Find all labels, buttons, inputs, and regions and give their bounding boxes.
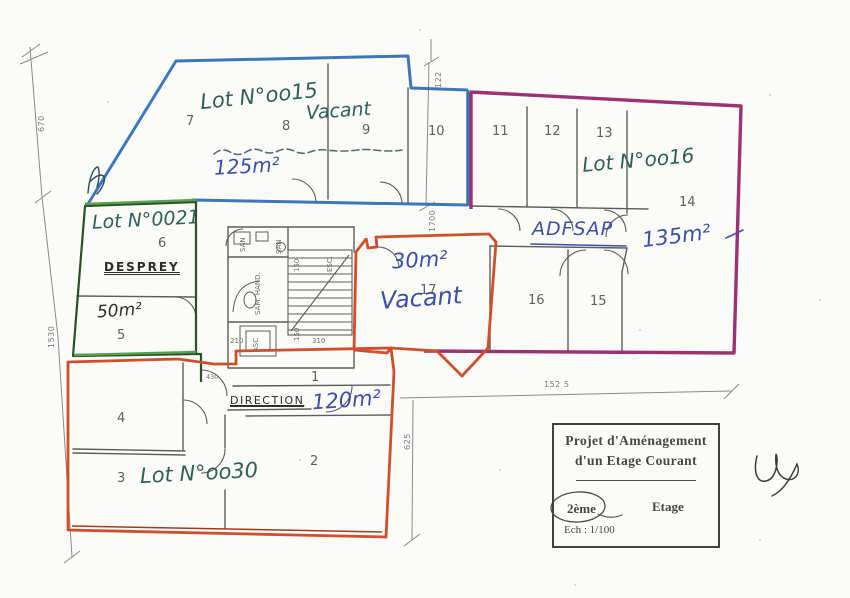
dim-bottom-width: 152 5 — [544, 381, 569, 389]
room-number-1: 1 — [311, 371, 319, 384]
adfsap-underline — [531, 244, 626, 246]
dim-left-lower: 1530 — [48, 326, 56, 348]
title-line-1: Projet d'Aménagement — [554, 433, 718, 449]
room-number-13: 13 — [596, 127, 613, 140]
floor-word: Etage — [652, 499, 684, 515]
dim-310: 310 — [312, 338, 325, 345]
room-number-3: 3 — [117, 472, 125, 485]
dim-150-a: 150 — [294, 259, 301, 272]
room-number-2: 2 — [310, 455, 318, 468]
area-135-arrow — [726, 230, 743, 238]
lot21-tenant: DESPREY — [104, 261, 180, 275]
title-line-2: d'un Etage Courant — [554, 453, 718, 469]
room-number-15: 15 — [590, 295, 607, 308]
core-label-sam-hand: SAM. HAND. — [255, 272, 262, 315]
floor-value: 2ème — [567, 501, 596, 517]
dim-bottom-height: 625 — [404, 433, 412, 450]
room-number-6: 6 — [158, 237, 166, 250]
dim-210: 210 — [230, 338, 243, 345]
room-number-5: 5 — [117, 329, 125, 342]
room-number-12: 12 — [544, 125, 561, 138]
room-number-16: 16 — [528, 294, 545, 307]
scanned-floor-plan: Lot N°oo15 Vacant 125m² Lot N°0021 DESPR… — [0, 0, 850, 598]
title-block: Projet d'Aménagement d'un Etage Courant … — [552, 423, 720, 548]
room-number-9: 9 — [362, 124, 370, 137]
lot15-status: Vacant — [305, 100, 371, 123]
core-label-san-a: SAN — [240, 237, 247, 252]
lot15-area: 125m² — [214, 154, 281, 177]
room-number-7: 7 — [186, 115, 194, 128]
core-label-esc: ESC. — [327, 256, 334, 272]
lot30-tenant: DIRECTION — [230, 395, 304, 407]
room-number-11: 11 — [492, 125, 509, 138]
room-number-10: 10 — [428, 125, 445, 138]
dim-430: 430 — [206, 374, 218, 381]
lot21-area: 50m² — [96, 301, 142, 321]
lot30-area: 120m² — [311, 388, 381, 414]
lot-center-area: 30m² — [391, 249, 448, 273]
dim-150-b: 150 — [294, 328, 301, 341]
lot-0015-outline — [88, 56, 468, 206]
core-label-san-b: SAN — [276, 239, 283, 254]
scale-text: Ech : 1/100 — [564, 524, 615, 536]
room-number-17: 17 — [420, 284, 437, 297]
dim-room10-height: 1700 — [429, 210, 437, 232]
signature — [755, 454, 798, 496]
room-number-8: 8 — [282, 120, 290, 133]
dim-left-upper: 670 — [38, 115, 46, 132]
room-number-4: 4 — [117, 412, 125, 425]
core-label-asc: ASC — [253, 338, 260, 352]
title-divider — [576, 480, 696, 481]
dim-top-width: 122 — [435, 71, 443, 88]
lot-0030-outline — [68, 348, 394, 537]
room-number-14: 14 — [679, 196, 696, 209]
lot16-tenant: ADFSAP — [532, 220, 613, 239]
